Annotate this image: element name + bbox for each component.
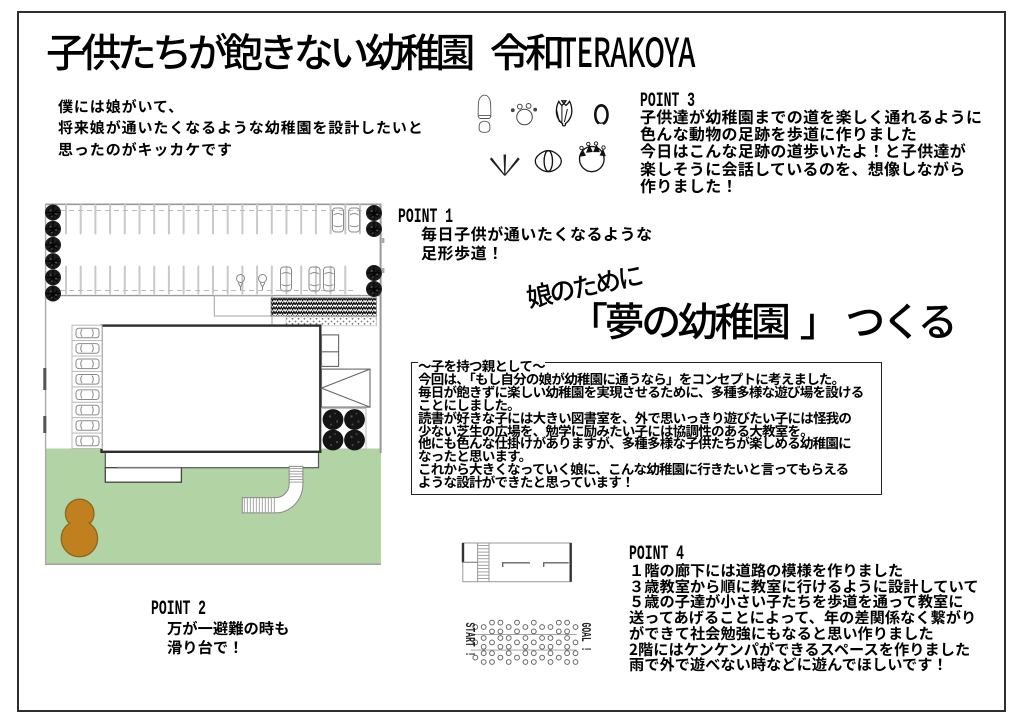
svg-text:GOAL !: GOAL ! bbox=[577, 623, 593, 652]
svg-text:START !: START ! bbox=[461, 623, 477, 657]
